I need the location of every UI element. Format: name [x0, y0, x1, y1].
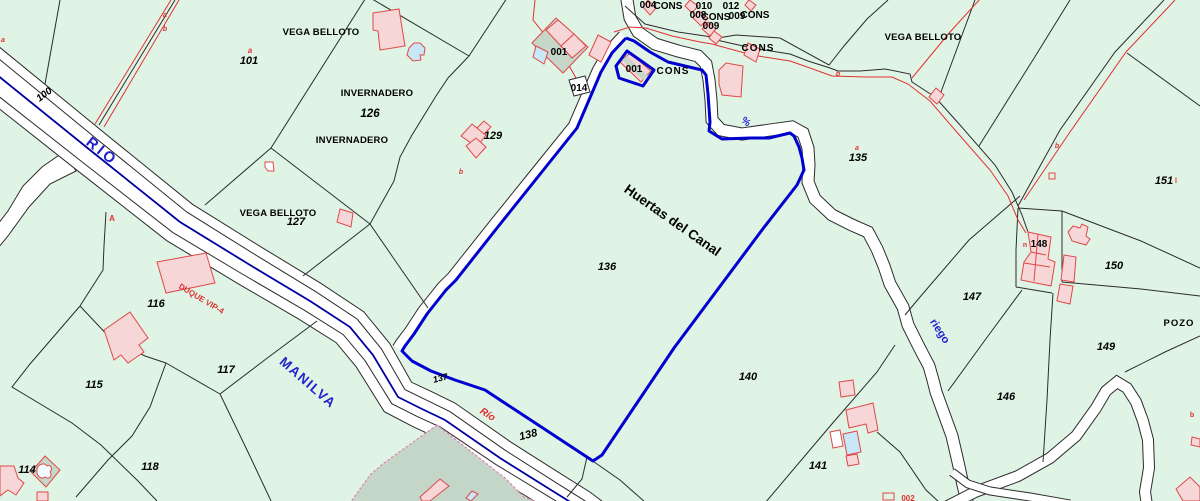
svg-text:118: 118 [141, 461, 159, 473]
svg-text:a: a [855, 145, 859, 152]
svg-text:l: l [1175, 178, 1177, 185]
svg-text:114: 114 [18, 464, 36, 476]
svg-text:147: 147 [963, 291, 982, 303]
svg-text:136: 136 [598, 261, 617, 273]
svg-text:a: a [1, 37, 5, 44]
svg-text:b: b [1190, 412, 1194, 419]
svg-text:b: b [459, 169, 464, 176]
svg-text:CONS: CONS [657, 66, 690, 77]
svg-text:117: 117 [217, 364, 235, 376]
svg-text:129: 129 [484, 130, 503, 142]
svg-text:a: a [163, 12, 167, 19]
svg-text:127: 127 [287, 216, 306, 228]
svg-text:b: b [836, 71, 841, 78]
svg-text:115: 115 [85, 379, 103, 391]
svg-text:002: 002 [901, 494, 915, 501]
svg-text:CONS: CONS [741, 10, 770, 21]
svg-text:A: A [109, 214, 115, 223]
svg-text:146: 146 [997, 391, 1016, 403]
svg-text:b: b [1055, 143, 1060, 150]
svg-text:VEGA BELLOTO: VEGA BELLOTO [885, 32, 962, 43]
svg-text:135: 135 [849, 152, 868, 164]
svg-text:141: 141 [809, 460, 827, 472]
svg-text:001: 001 [626, 64, 643, 75]
svg-text:INVERNADERO: INVERNADERO [316, 135, 388, 146]
svg-text:001: 001 [551, 47, 568, 58]
svg-text:014: 014 [571, 83, 588, 94]
svg-text:n: n [1023, 242, 1027, 249]
svg-text:148: 148 [1031, 239, 1048, 250]
svg-text:140: 140 [739, 371, 758, 383]
svg-text:CONS: CONS [654, 1, 683, 12]
svg-text:150: 150 [1105, 260, 1124, 272]
svg-text:CONS: CONS [742, 43, 775, 54]
svg-text:INVERNADERO: INVERNADERO [341, 88, 413, 99]
svg-text:149: 149 [1097, 341, 1116, 353]
svg-text:POZO: POZO [1164, 318, 1195, 329]
svg-text:VEGA BELLOTO: VEGA BELLOTO [283, 27, 360, 38]
svg-text:b: b [163, 26, 168, 33]
svg-text:126: 126 [360, 108, 380, 120]
svg-text:a: a [248, 46, 253, 55]
svg-text:009: 009 [703, 21, 720, 32]
svg-text:101: 101 [240, 55, 258, 67]
svg-text:116: 116 [147, 298, 165, 310]
svg-text:151: 151 [1155, 175, 1173, 187]
